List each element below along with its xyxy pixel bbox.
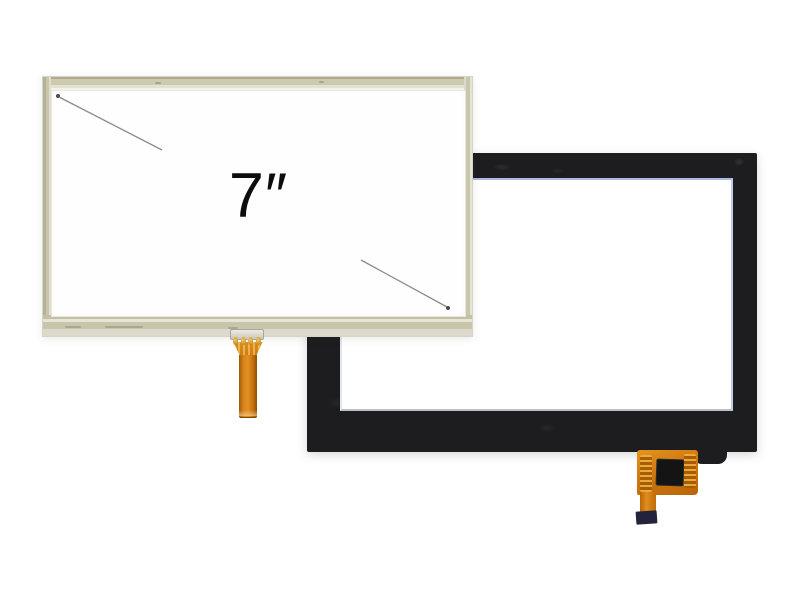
res-panel-flex-ribbon bbox=[239, 355, 257, 418]
cap-panel-flex-tail-stiffener bbox=[636, 510, 658, 524]
dust-speck bbox=[319, 81, 324, 83]
resistive-touch-panel: 7″ bbox=[42, 76, 473, 337]
dimension-line-bottom-right bbox=[361, 260, 447, 307]
edge-mark bbox=[65, 326, 81, 328]
res-panel-connector-pins bbox=[233, 337, 261, 345]
res-panel-glass: 7″ bbox=[51, 90, 466, 317]
dimension-dot-bottom-right bbox=[446, 306, 450, 310]
flex-contact-strip-right bbox=[684, 454, 696, 488]
connector-pin bbox=[248, 337, 253, 345]
cap-panel-bottom-tab bbox=[693, 444, 727, 464]
connector-pin bbox=[233, 337, 238, 345]
res-panel-frame-top bbox=[43, 77, 472, 90]
product-photo: 7″ bbox=[0, 0, 800, 600]
cap-panel-flex-cable bbox=[637, 450, 698, 495]
connector-pin bbox=[241, 337, 246, 345]
dust-speck bbox=[155, 82, 161, 84]
touch-controller-ic bbox=[656, 459, 685, 487]
res-panel-frame-left bbox=[43, 77, 51, 336]
edge-mark bbox=[105, 326, 143, 328]
flex-contact-strip-left bbox=[640, 455, 652, 492]
size-label: 7″ bbox=[51, 165, 466, 228]
dimension-line-top-left bbox=[59, 97, 162, 150]
connector-pin bbox=[256, 337, 261, 345]
